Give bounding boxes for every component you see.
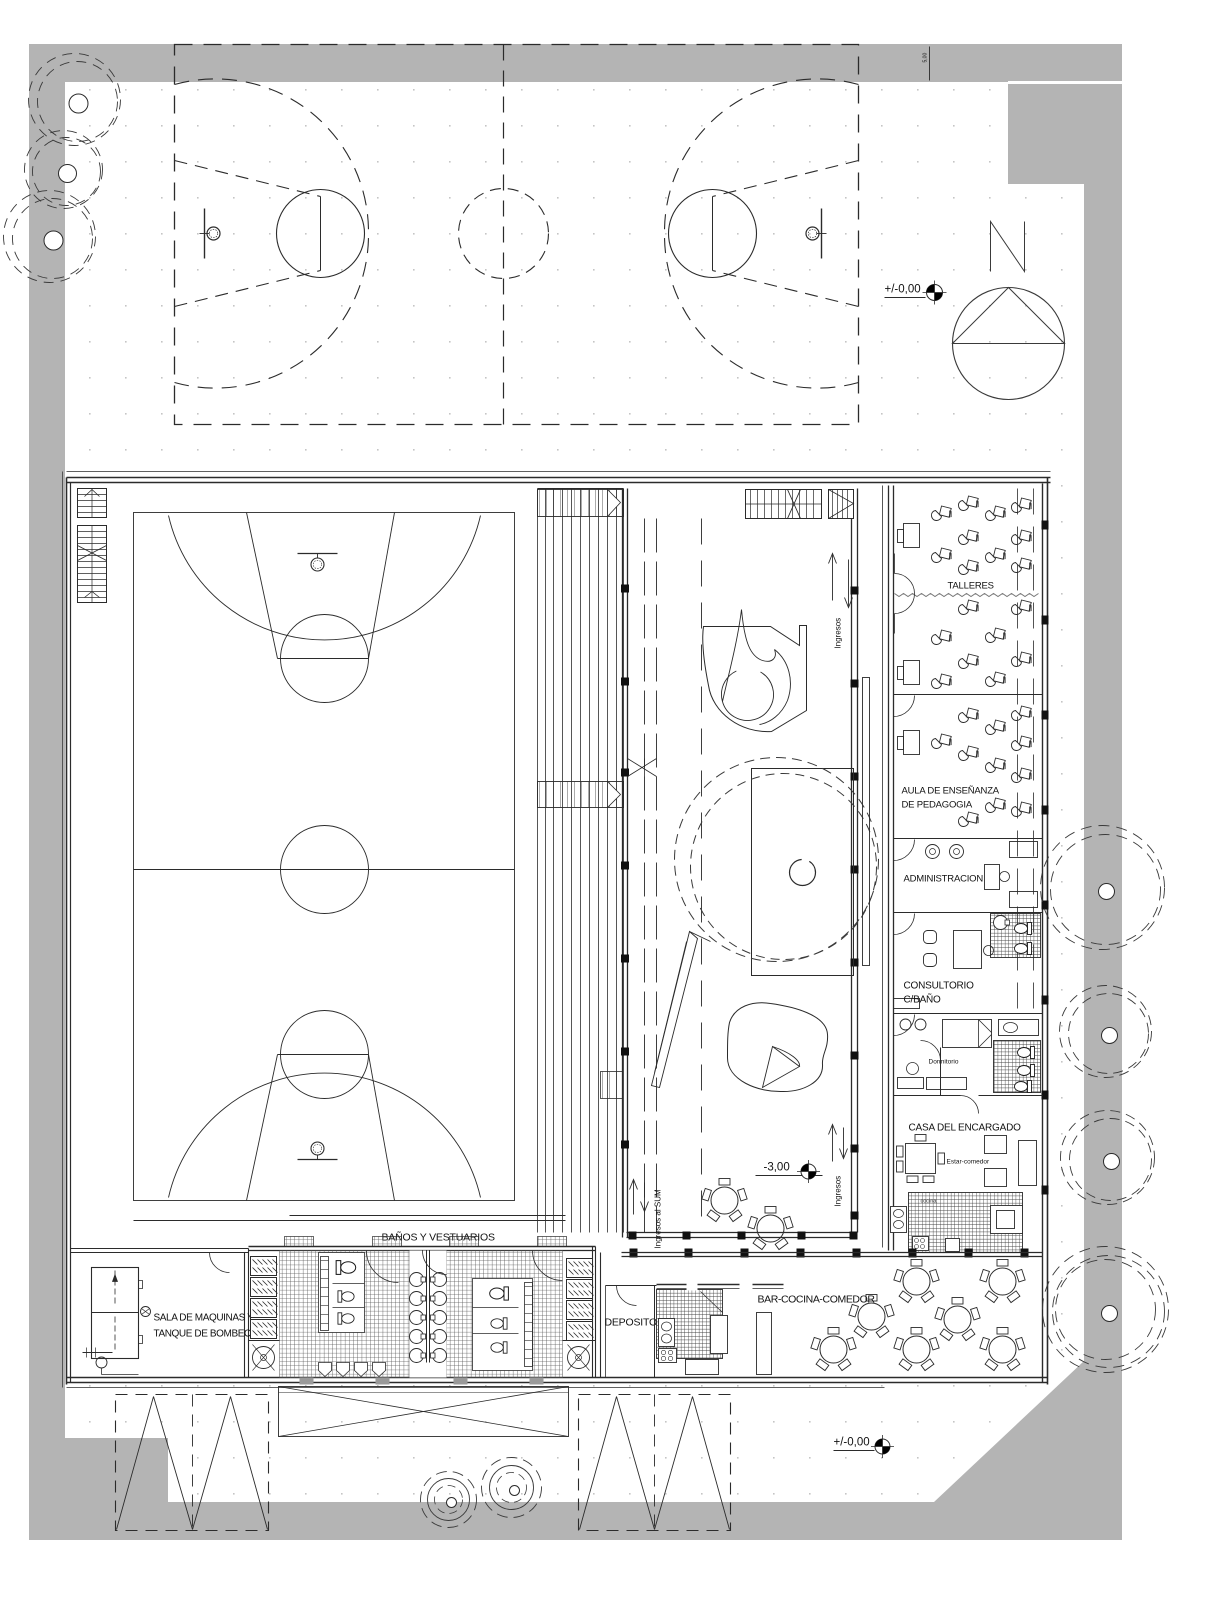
svg-text:C/BAÑO: C/BAÑO — [904, 993, 942, 1006]
svg-text:Ingresos: Ingresos — [834, 618, 843, 649]
svg-text:Ingresos: Ingresos — [834, 1176, 843, 1207]
svg-text:ADMINISTRACION: ADMINISTRACION — [904, 874, 984, 885]
svg-text:-3,00: -3,00 — [764, 1162, 790, 1174]
svg-text:5,00: 5,00 — [923, 53, 929, 63]
svg-text:CONSULTORIO: CONSULTORIO — [904, 981, 975, 992]
svg-text:cocina: cocina — [921, 1199, 938, 1205]
svg-text:DEPOSITO: DEPOSITO — [605, 1317, 658, 1329]
svg-text:AULA DE ENSEÑANZA: AULA DE ENSEÑANZA — [902, 786, 1000, 797]
svg-text:BAR-COCINA-COMEDOR: BAR-COCINA-COMEDOR — [758, 1294, 876, 1306]
svg-text:+/-0,00: +/-0,00 — [885, 284, 921, 296]
svg-text:CASA DEL ENCARGADO: CASA DEL ENCARGADO — [909, 1123, 1022, 1134]
svg-text:SALA DE MAQUINAS Y: SALA DE MAQUINAS Y — [154, 1313, 255, 1324]
svg-text:Estar-comedor: Estar-comedor — [947, 1159, 990, 1166]
svg-text:TALLERES: TALLERES — [948, 581, 994, 592]
svg-text:DE PEDAGOGIA: DE PEDAGOGIA — [902, 800, 973, 811]
svg-text:Ingresos al SUM: Ingresos al SUM — [654, 1189, 663, 1248]
svg-text:TANQUE DE BOMBEO: TANQUE DE BOMBEO — [154, 1329, 252, 1340]
svg-text:+/-0,00: +/-0,00 — [834, 1437, 870, 1449]
svg-text:Dormitorio: Dormitorio — [929, 1059, 959, 1066]
